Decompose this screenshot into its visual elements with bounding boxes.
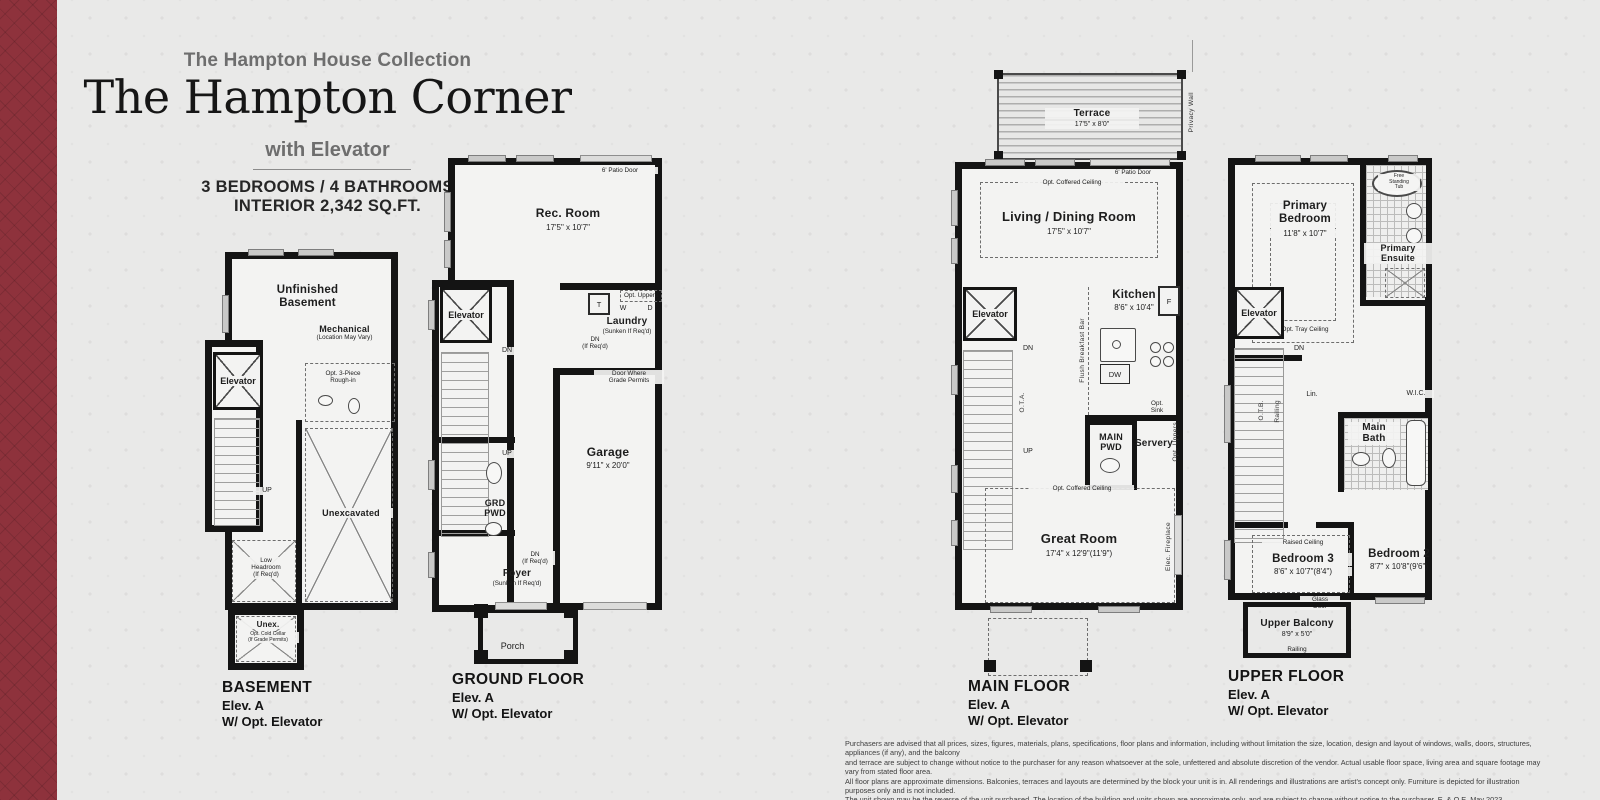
dishwasher-label: DW — [1109, 370, 1122, 379]
main-bath-sink-icon — [1352, 452, 1370, 466]
balcony-railing-label: Railing — [1249, 646, 1345, 653]
great-room-coffered-label: Opt. Coffered Ceiling — [1030, 485, 1134, 492]
cooktop-burner-icon — [1163, 356, 1174, 367]
terrace-post — [1177, 70, 1186, 79]
freestanding-tub-label: Free Standing Tub — [1378, 174, 1420, 191]
main-window — [985, 159, 1025, 166]
garage-door-band — [583, 602, 647, 610]
fridge-label: F — [1167, 297, 1172, 306]
legal-disclaimer: Purchasers are advised that all prices, … — [845, 739, 1550, 800]
cooktop-burner-icon — [1150, 342, 1161, 353]
island-sink-icon — [1112, 340, 1121, 349]
low-headroom-label: Low Headroom (If Req'd) — [237, 557, 295, 579]
cooktop-burner-icon — [1163, 342, 1174, 353]
spec-bed-bath: 3 BEDROOMS / 4 BATHROOMS — [201, 178, 454, 196]
basement-elevation: Elev. A — [222, 698, 322, 713]
main-elevator: Elevator — [963, 287, 1017, 341]
basement-elevator-label: Elevator — [218, 376, 258, 386]
terrace-post — [994, 70, 1003, 79]
main-patio-door-label: 6' Patio Door — [1092, 169, 1174, 176]
garage-label: Garage — [562, 446, 654, 460]
ensuite-sink-icon — [1406, 228, 1422, 244]
main-option: W/ Opt. Elevator — [968, 713, 1070, 728]
main-window — [1035, 159, 1075, 166]
main-title: MAIN FLOOR — [968, 678, 1070, 696]
terrace-label: Terrace — [1045, 108, 1139, 119]
page-title: The Hampton Corner — [60, 70, 595, 124]
breakfast-bar-label: Flush Breakfast Bar — [1079, 318, 1086, 383]
main-bath-label: Main Bath — [1348, 422, 1400, 445]
basement-option: W/ Opt. Elevator — [222, 714, 322, 729]
pwd-sink-icon — [485, 522, 502, 536]
upper-window — [1224, 540, 1231, 580]
ground-partition — [560, 283, 662, 290]
main-window — [1098, 606, 1140, 613]
main-floor-label: MAIN FLOOR Elev. A W/ Opt. Elevator — [968, 678, 1070, 728]
living-coffered-label: Opt. Coffered Ceiling — [1020, 179, 1124, 186]
basement-elevator: Elevator — [213, 352, 263, 410]
upper-window — [1375, 597, 1425, 604]
upper-floor-label: UPPER FLOOR Elev. A W/ Opt. Elevator — [1228, 668, 1344, 718]
ground-window — [468, 155, 506, 162]
upper-option: W/ Opt. Elevator — [1228, 703, 1344, 718]
ground-partition — [553, 374, 560, 610]
upper-balcony-label: Upper Balcony — [1249, 618, 1345, 629]
ground-window — [428, 460, 435, 490]
main-window — [951, 238, 958, 264]
foyer-label: Foyer — [486, 568, 548, 579]
foyer-dn-label: DN (If Req'd) — [515, 551, 555, 565]
door-grade-label: Door Where Grade Permits — [594, 370, 664, 384]
foyer-note: (Sunken If Req'd) — [478, 580, 556, 587]
cold-cellar-unex-label: Unex. — [241, 620, 295, 629]
mechanical-label: Mechanical — [292, 324, 397, 334]
main-ota-label: O.T.A. — [1019, 392, 1026, 412]
laundry-dn-label: DN (If Req'd) — [575, 336, 615, 350]
wic-label: W.I.C. — [1398, 390, 1434, 398]
main-window — [951, 520, 958, 546]
grd-pwd-label: GRD PWD — [470, 498, 520, 519]
upper-title: UPPER FLOOR — [1228, 668, 1344, 686]
porch-post — [474, 650, 488, 664]
main-porch-post — [1080, 660, 1092, 672]
basement-window — [298, 249, 334, 256]
fireplace-label: Elec. Fireplace — [1165, 522, 1172, 571]
otb-label: O.T.B. — [1258, 400, 1265, 420]
primary-bedroom-dims: 11'8" x 10'7" — [1258, 229, 1352, 238]
ground-elevator: Elevator — [440, 287, 492, 343]
dishwasher: DW — [1100, 364, 1130, 384]
collection-name: The Hampton House Collection — [100, 50, 555, 72]
opt-uppers-label: Opt. Uppers — [618, 292, 664, 299]
bedroom2-dims: 8'7" x 10'8"(9'6") — [1352, 562, 1446, 571]
basement-window — [248, 249, 284, 256]
laundry-label: Laundry — [590, 316, 664, 327]
unfinished-basement-label: Unfinished Basement — [250, 284, 365, 310]
main-window — [990, 606, 1032, 613]
disclaimer-line: Purchasers are advised that all prices, … — [845, 739, 1550, 758]
porch-wall — [478, 608, 578, 664]
main-dn-label: DN — [1013, 345, 1043, 353]
primary-bedroom-label: Primary Bedroom — [1258, 200, 1352, 226]
upper-elevator: Elevator — [1234, 287, 1284, 339]
terrace-dims: 17'5" x 8'0" — [1045, 121, 1139, 129]
basement-stairs — [214, 418, 260, 526]
ground-window — [516, 155, 554, 162]
main-window — [951, 365, 958, 395]
stair-railing-label: Railing — [1274, 400, 1281, 423]
porch-post — [564, 650, 578, 664]
upper-window — [1310, 155, 1348, 162]
upper-dn-label: DN — [1284, 345, 1314, 353]
ground-dn-label: DN — [492, 347, 522, 355]
ground-floor-label: GROUND FLOOR Elev. A W/ Opt. Elevator — [452, 671, 584, 721]
raised-ceiling-label: Raised Ceiling — [1262, 539, 1344, 546]
primary-ensuite-label: Primary Ensuite — [1364, 243, 1432, 264]
basement-up-label: UP — [253, 487, 281, 495]
upper-window — [1255, 155, 1301, 162]
ground-elevation: Elev. A — [452, 690, 584, 705]
upper-stairs — [1234, 348, 1284, 543]
main-window — [951, 465, 958, 493]
unexcavated-label: Unexcavated — [309, 508, 393, 518]
front-door-band — [495, 602, 547, 610]
basement-floor-label: BASEMENT Elev. A W/ Opt. Elevator — [222, 679, 322, 729]
ground-patio-door — [580, 155, 652, 162]
main-opt-uppers-label: Opt. Uppers — [1172, 422, 1179, 461]
garage-dims: 9'11" x 20'0" — [562, 461, 654, 470]
ground-up-label: UP — [492, 450, 522, 458]
washer-label: W — [614, 305, 632, 313]
main-pwd-sink-icon — [1100, 458, 1120, 473]
living-dining-label: Living / Dining Room — [985, 210, 1153, 225]
dryer-label: D — [641, 305, 659, 313]
basement-partition — [296, 420, 302, 610]
laundry-tub-label: T — [597, 300, 602, 309]
dimension-line — [1192, 40, 1193, 72]
basement-title: BASEMENT — [222, 679, 322, 697]
pwd-toilet-icon — [486, 462, 502, 484]
upper-window — [1388, 155, 1418, 162]
privacy-wall-label: Privacy Wall — [1188, 92, 1195, 132]
brochure-page: The Hampton House Collection The Hampton… — [0, 0, 1600, 800]
living-dining-dims: 17'5" x 10'7" — [985, 227, 1153, 236]
porch-post — [474, 604, 488, 618]
main-lower-porch-outline — [988, 618, 1088, 676]
ground-window — [444, 192, 451, 232]
main-window — [951, 190, 958, 226]
upper-elevator-label: Elevator — [1239, 308, 1279, 318]
rough-in-sink-icon — [318, 395, 333, 406]
main-porch-post — [984, 660, 996, 672]
disclaimer-line: All floor plans are approximate dimensio… — [845, 777, 1550, 796]
disclaimer-line: The unit shown may be the reverse of the… — [845, 795, 1550, 800]
main-bath-tub — [1406, 420, 1426, 486]
upper-partition — [1316, 522, 1352, 528]
cooktop-burner-icon — [1150, 356, 1161, 367]
ground-option: W/ Opt. Elevator — [452, 706, 584, 721]
porch-post — [564, 604, 578, 618]
upper-balcony-dims: 8'9" x 5'0" — [1249, 631, 1345, 639]
great-room-dims: 17'4" x 12'9"(11'9") — [995, 549, 1163, 558]
ensuite-sink-icon — [1406, 203, 1422, 219]
rec-room-dims: 17'5" x 10'7" — [508, 223, 628, 232]
terrace-post — [1177, 151, 1186, 160]
bedroom3-dims: 8'6" x 10'7"(8'4") — [1254, 567, 1352, 576]
ground-window — [444, 240, 451, 268]
fridge: F — [1158, 286, 1180, 316]
porch-label: Porch — [485, 641, 540, 651]
main-up-label: UP — [1013, 448, 1043, 456]
left-accent-strip — [0, 0, 57, 800]
upper-elevation: Elev. A — [1228, 687, 1344, 702]
fireplace-niche — [1174, 515, 1182, 575]
rough-in-label: Opt. 3-Piece Rough-in — [312, 370, 374, 384]
linen-label: Lin. — [1296, 391, 1328, 399]
rough-in-toilet-icon — [348, 398, 360, 414]
upper-window — [1224, 385, 1231, 443]
rec-room-label: Rec. Room — [508, 207, 628, 221]
main-pwd-wall — [1085, 420, 1137, 490]
opt-sink-label: Opt. Sink — [1140, 400, 1174, 414]
mechanical-note: (Location May Vary) — [292, 334, 397, 341]
bedroom2-label: Bedroom 2 — [1352, 548, 1446, 561]
main-elevation: Elev. A — [968, 697, 1070, 712]
main-bath-toilet-icon — [1382, 448, 1396, 468]
basement-window — [222, 295, 229, 333]
ground-patio-door-label: 6' Patio Door — [582, 167, 658, 174]
laundry-tub: T — [588, 293, 610, 315]
ground-elevator-label: Elevator — [446, 310, 486, 320]
header-divider — [253, 169, 411, 170]
breakfast-bar-line — [1088, 287, 1089, 415]
main-elevator-label: Elevator — [970, 309, 1010, 319]
ground-window — [428, 552, 435, 578]
main-patio-door — [1090, 159, 1170, 166]
great-room-label: Great Room — [995, 532, 1163, 547]
ensuite-shower — [1385, 268, 1425, 298]
ground-title: GROUND FLOOR — [452, 671, 584, 689]
laundry-note: (Sunken If Req'd) — [590, 328, 664, 335]
disclaimer-line: and terrace are subject to change withou… — [845, 758, 1550, 777]
cold-cellar-note: Opt. Cold Cellar (If Grade Permits) — [237, 632, 299, 643]
ground-window — [428, 300, 435, 330]
bedroom3-label: Bedroom 3 — [1254, 553, 1352, 566]
upper-partition — [1360, 300, 1432, 306]
